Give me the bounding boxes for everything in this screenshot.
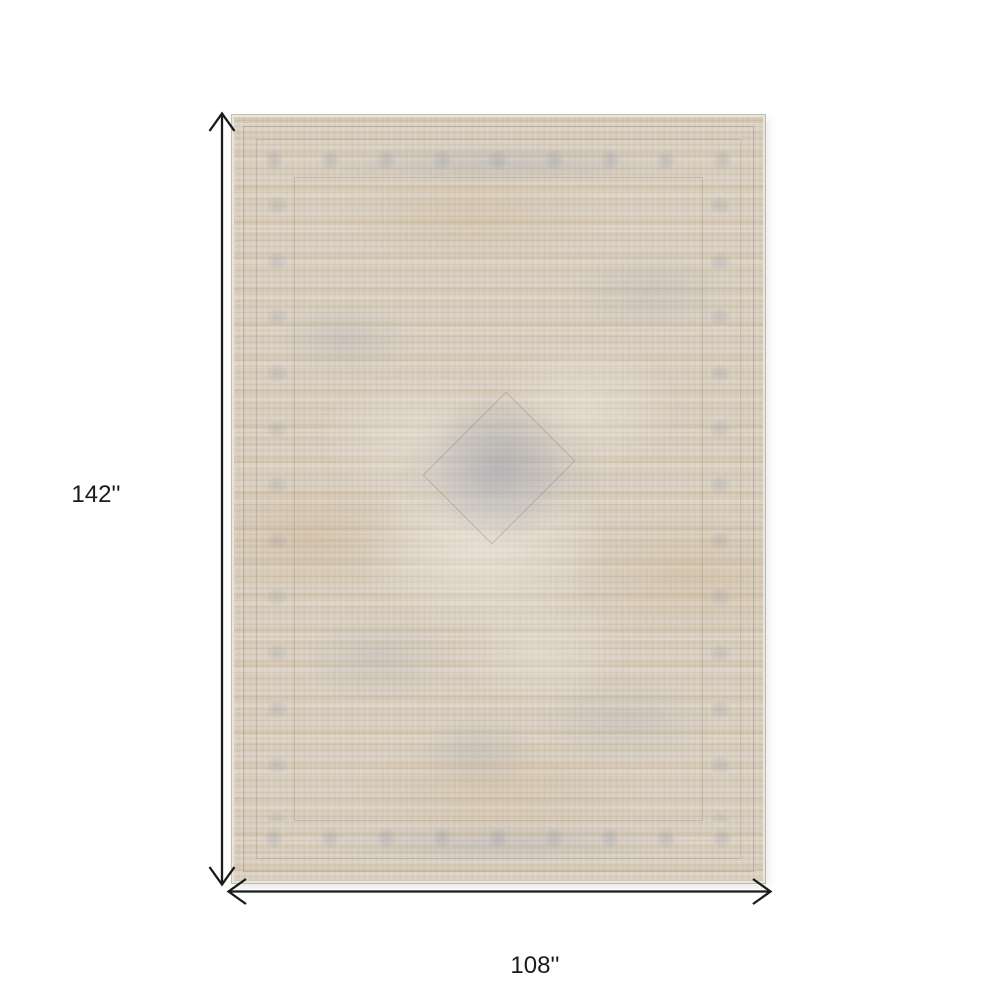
rug-border-motifs-bottom [246,821,751,855]
width-dimension-label: 108'' [510,954,559,978]
rug-center-medallion [414,363,584,573]
rug-border-motifs-top [246,143,751,177]
rug-image [232,115,765,883]
rug-border-motifs-right [703,177,737,821]
rug-border-motifs-left [260,177,294,821]
height-dimension-label: 142'' [71,483,120,507]
product-dimension-diagram: 142'' 108'' [0,0,1000,1000]
height-dimension-arrow [210,114,235,885]
